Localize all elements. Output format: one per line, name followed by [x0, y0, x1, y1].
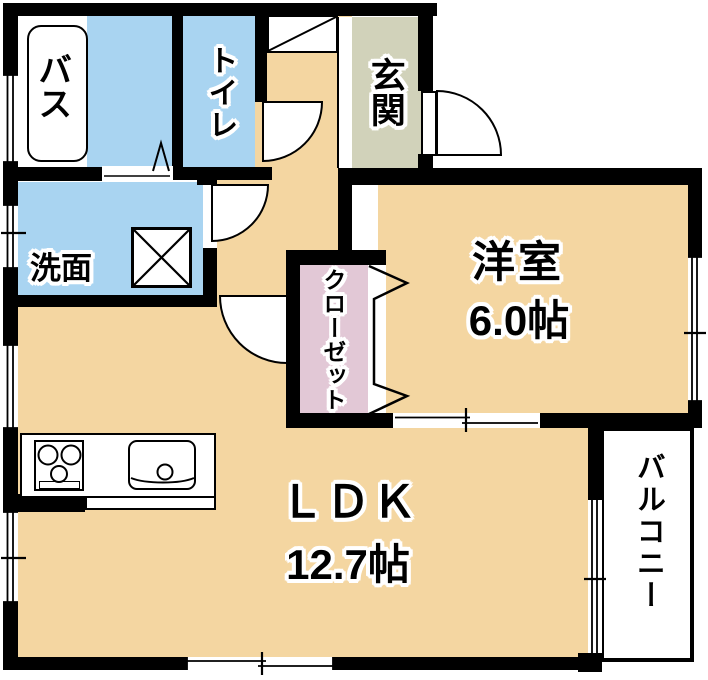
entrance-label: 玄関	[366, 57, 404, 127]
window-bath-left	[3, 75, 18, 162]
wall-balcony-left	[588, 428, 602, 500]
wall-entrance-right-upper	[418, 3, 433, 91]
floorplan: バス トイレ 玄関 洗面 クローゼット 洋室 6.0帖 ＬＤＫ 12.7帖 バル…	[0, 0, 708, 680]
wall-hall-western	[338, 168, 352, 258]
wall-right-lower	[688, 401, 702, 428]
western-room-label: 洋室	[472, 240, 564, 286]
western-room-size: 6.0帖	[469, 298, 569, 343]
ldk-label: ＬＤＫ	[280, 479, 418, 527]
washroom-label: 洗面	[30, 252, 92, 285]
slider-ldk-western	[393, 413, 540, 428]
bath-label: バス	[33, 52, 70, 120]
wall-toilet-bottom	[172, 167, 272, 180]
wall-toilet-right	[255, 16, 267, 102]
stove-grill	[39, 481, 80, 489]
window-ldk-bottom	[187, 657, 333, 670]
closet-label: クローゼット	[320, 268, 345, 412]
bath-wet-floor	[87, 16, 175, 168]
wall-bath-toilet	[172, 16, 183, 167]
wall-bath-bottom	[3, 167, 102, 181]
wall-western-top	[338, 168, 702, 185]
wall-entrance-right-stub	[418, 154, 433, 176]
western-room-left-strip	[352, 185, 378, 258]
washing-machine-pan	[131, 227, 192, 288]
wall-top	[3, 3, 437, 16]
wall-bottom-right-stub	[578, 653, 602, 672]
window-ldk-left-upper	[3, 345, 18, 428]
bath-door-gap	[102, 166, 173, 182]
wall-washroom-bottom	[3, 295, 217, 307]
wall-right-upper	[688, 168, 702, 257]
wall-closet-left	[286, 250, 300, 428]
slider-balcony	[588, 500, 602, 653]
ldk-size: 12.7帖	[286, 542, 410, 587]
entrance-step	[337, 17, 352, 168]
toilet-label: トイレ	[203, 45, 235, 141]
shoe-cabinet	[267, 15, 338, 53]
window-ldk-left-lower	[3, 512, 18, 602]
kitchen-sink	[128, 440, 196, 490]
entrance-door-swing	[437, 91, 501, 155]
window-western-right	[688, 257, 702, 401]
closet-door-strip	[368, 265, 386, 413]
wall-closet-bottom	[286, 413, 393, 428]
wall-washroom-right-top	[197, 170, 217, 185]
kitchen-counter-lip	[85, 496, 216, 510]
wall-ldk-western	[540, 413, 702, 428]
wall-closet-top	[286, 250, 386, 265]
balcony-label: バルコニー	[632, 452, 663, 612]
entrance-door-leaf	[422, 92, 436, 155]
window-washroom-left	[3, 205, 18, 268]
